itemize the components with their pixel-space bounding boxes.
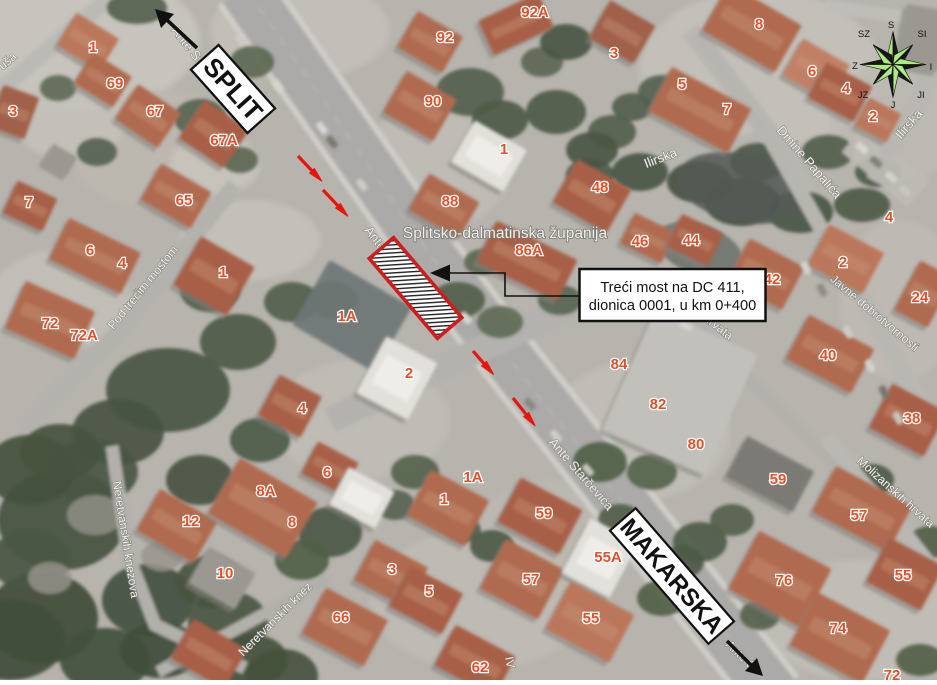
svg-text:1A: 1A bbox=[337, 308, 356, 325]
svg-text:1: 1 bbox=[500, 141, 508, 158]
svg-text:2: 2 bbox=[405, 365, 413, 382]
svg-text:84: 84 bbox=[611, 356, 628, 373]
svg-text:88: 88 bbox=[442, 193, 459, 210]
svg-text:7: 7 bbox=[723, 101, 731, 118]
svg-text:46: 46 bbox=[632, 233, 649, 250]
svg-text:1: 1 bbox=[89, 39, 97, 56]
svg-text:10: 10 bbox=[217, 565, 234, 582]
svg-text:1: 1 bbox=[219, 264, 227, 281]
svg-text:67: 67 bbox=[147, 103, 164, 120]
svg-text:3: 3 bbox=[610, 45, 618, 62]
svg-text:92: 92 bbox=[437, 29, 454, 46]
svg-text:IV: IV bbox=[502, 656, 518, 670]
svg-text:Treći most na DC 411,: Treći most na DC 411, bbox=[600, 280, 744, 296]
svg-text:72: 72 bbox=[42, 315, 59, 332]
svg-text:59: 59 bbox=[770, 471, 787, 488]
svg-text:6: 6 bbox=[808, 63, 816, 80]
svg-text:55: 55 bbox=[583, 610, 600, 627]
svg-text:74: 74 bbox=[830, 620, 847, 637]
svg-text:72: 72 bbox=[884, 667, 901, 680]
svg-text:I: I bbox=[930, 62, 933, 73]
svg-text:2: 2 bbox=[869, 108, 877, 125]
svg-text:66: 66 bbox=[333, 609, 350, 626]
svg-text:4: 4 bbox=[118, 255, 127, 272]
svg-text:65: 65 bbox=[176, 192, 193, 209]
svg-text:4: 4 bbox=[885, 209, 894, 226]
svg-text:7: 7 bbox=[25, 194, 33, 211]
svg-text:6: 6 bbox=[323, 464, 331, 481]
svg-text:3: 3 bbox=[388, 561, 396, 578]
svg-text:44: 44 bbox=[683, 232, 700, 249]
svg-text:Z: Z bbox=[852, 61, 858, 72]
svg-text:69: 69 bbox=[107, 75, 124, 92]
svg-text:6: 6 bbox=[86, 242, 94, 259]
svg-text:86A: 86A bbox=[515, 242, 543, 259]
svg-text:40: 40 bbox=[820, 347, 837, 364]
svg-text:SI: SI bbox=[918, 29, 927, 40]
svg-text:8: 8 bbox=[755, 16, 763, 33]
svg-text:2: 2 bbox=[839, 254, 847, 271]
svg-text:JZ: JZ bbox=[858, 90, 869, 101]
svg-text:SZ: SZ bbox=[858, 29, 870, 40]
svg-text:JI: JI bbox=[917, 90, 924, 101]
svg-text:8A: 8A bbox=[256, 483, 275, 500]
svg-text:3: 3 bbox=[9, 103, 17, 120]
svg-text:57: 57 bbox=[523, 571, 540, 588]
svg-text:8: 8 bbox=[288, 514, 296, 531]
svg-text:59: 59 bbox=[536, 505, 553, 522]
svg-text:55: 55 bbox=[895, 567, 912, 584]
svg-text:5: 5 bbox=[425, 583, 433, 600]
svg-text:92A: 92A bbox=[521, 4, 549, 21]
svg-text:4: 4 bbox=[298, 400, 307, 417]
svg-text:80: 80 bbox=[688, 436, 705, 453]
svg-text:82: 82 bbox=[650, 396, 667, 413]
svg-text:62: 62 bbox=[472, 659, 489, 676]
svg-text:57: 57 bbox=[851, 507, 868, 524]
svg-text:5: 5 bbox=[678, 76, 686, 93]
svg-text:1: 1 bbox=[440, 491, 448, 508]
svg-text:90: 90 bbox=[425, 93, 442, 110]
svg-text:12: 12 bbox=[183, 513, 200, 530]
svg-text:1A: 1A bbox=[463, 469, 482, 486]
svg-text:38: 38 bbox=[904, 410, 921, 427]
svg-text:76: 76 bbox=[776, 572, 793, 589]
svg-text:Splitsko-dalmatinska županija: Splitsko-dalmatinska županija bbox=[403, 225, 608, 242]
svg-text:72A: 72A bbox=[70, 327, 98, 344]
svg-text:48: 48 bbox=[592, 179, 609, 196]
svg-text:55A: 55A bbox=[594, 549, 622, 566]
svg-text:S: S bbox=[888, 20, 894, 31]
svg-text:4: 4 bbox=[842, 80, 851, 97]
svg-text:24: 24 bbox=[912, 289, 929, 306]
svg-text:J: J bbox=[891, 100, 896, 111]
svg-text:dionica 0001, u km 0+400: dionica 0001, u km 0+400 bbox=[589, 298, 757, 314]
svg-text:67A: 67A bbox=[210, 132, 238, 149]
